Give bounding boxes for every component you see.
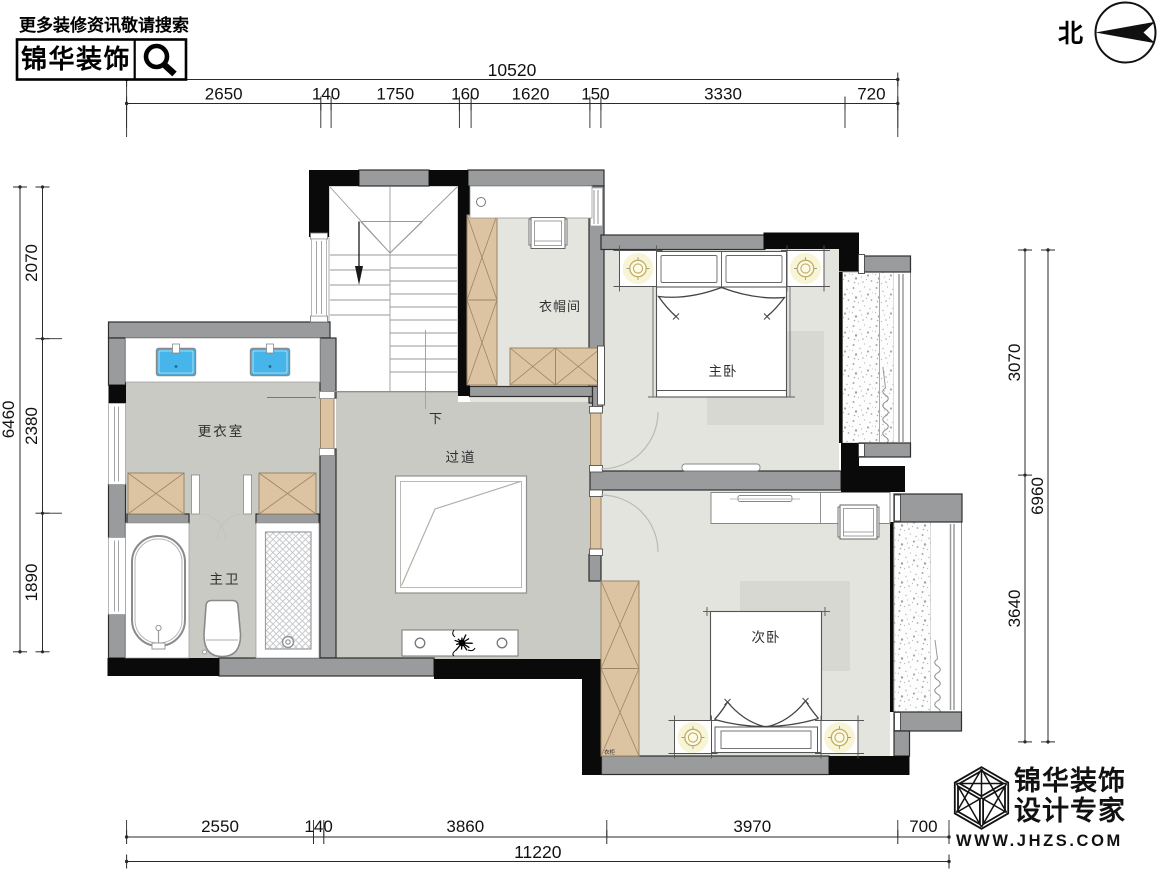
svg-text:2550: 2550 — [201, 817, 239, 836]
svg-text:过道: 过道 — [446, 450, 477, 465]
svg-text:1750: 1750 — [376, 85, 414, 104]
svg-text:140: 140 — [312, 85, 340, 104]
svg-text:720: 720 — [857, 85, 885, 104]
svg-text:衣柜: 衣柜 — [604, 748, 616, 756]
svg-text:140: 140 — [304, 817, 332, 836]
svg-text:3860: 3860 — [446, 817, 484, 836]
svg-text:3330: 3330 — [704, 85, 742, 104]
svg-text:衣帽间: 衣帽间 — [539, 299, 581, 314]
svg-text:1620: 1620 — [512, 85, 550, 104]
svg-text:2650: 2650 — [205, 85, 243, 104]
svg-text:北: 北 — [1058, 20, 1083, 48]
svg-text:3640: 3640 — [1005, 590, 1024, 628]
svg-text:下: 下 — [429, 411, 442, 426]
svg-text:锦华装饰: 锦华装饰 — [1014, 765, 1126, 796]
svg-text:WWW.JHZS.COM: WWW.JHZS.COM — [956, 832, 1123, 850]
svg-text:设计专家: 设计专家 — [1014, 795, 1126, 826]
svg-text:次卧: 次卧 — [752, 630, 781, 645]
svg-text:6460: 6460 — [0, 400, 18, 438]
svg-text:锦华装饰: 锦华装饰 — [21, 44, 131, 74]
svg-text:更衣室: 更衣室 — [198, 423, 245, 439]
svg-text:主卧: 主卧 — [709, 364, 738, 379]
svg-text:3070: 3070 — [1005, 344, 1024, 382]
svg-text:3970: 3970 — [733, 817, 771, 836]
svg-text:更多装修资讯敬请搜索: 更多装修资讯敬请搜索 — [19, 15, 189, 35]
svg-text:主卫: 主卫 — [210, 572, 241, 587]
svg-text:150: 150 — [581, 85, 609, 104]
svg-text:11220: 11220 — [514, 842, 562, 862]
svg-text:2380: 2380 — [22, 407, 41, 445]
svg-text:2070: 2070 — [22, 244, 41, 282]
svg-text:1890: 1890 — [22, 564, 41, 602]
svg-text:160: 160 — [451, 85, 479, 104]
svg-text:10520: 10520 — [488, 60, 537, 80]
svg-text:700: 700 — [909, 817, 937, 836]
svg-text:6960: 6960 — [1028, 477, 1047, 515]
